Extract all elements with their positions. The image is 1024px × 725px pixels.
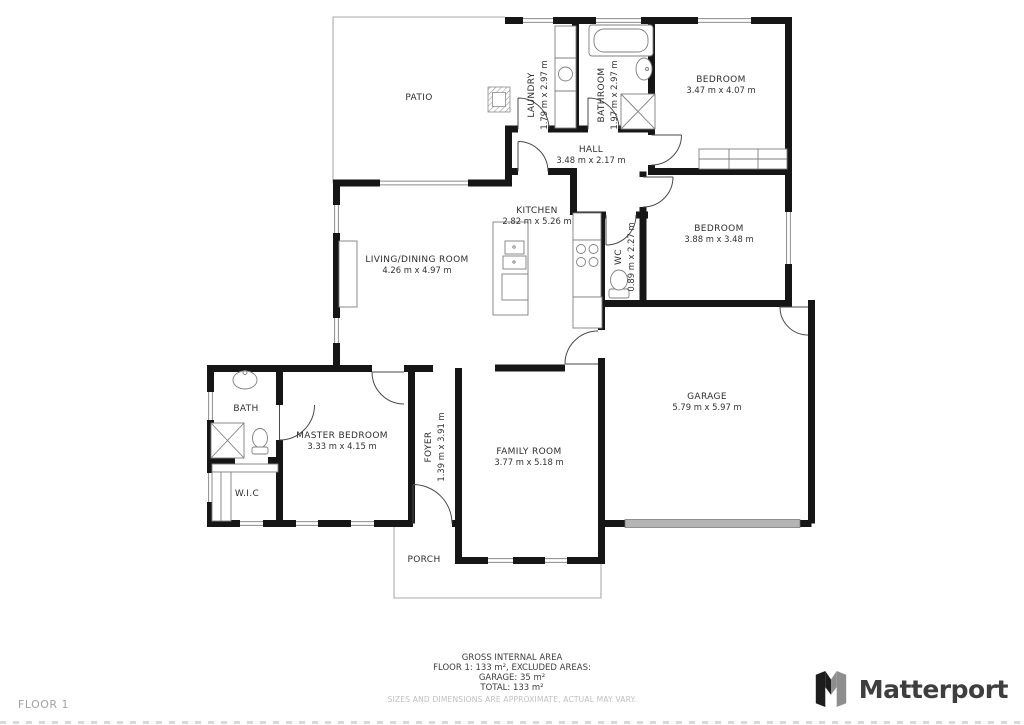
room-label-porch: PORCH [407,555,440,565]
matterport-logo: Matterport [812,670,1008,708]
room-label-garage: GARAGE [687,392,727,402]
garage-door [625,520,800,528]
room-label-patio: PATIO [405,93,432,103]
room-dims-bedroom-mid: 3.88 m x 3.48 m [684,234,753,244]
room-dims-bedroom-top: 3.47 m x 4.07 m [686,85,755,95]
room-label-laundry: LAUNDRY [527,72,537,117]
room-dims-foyer: 1.39 m x 3.91 m [436,412,446,481]
kitchen-counter [573,213,602,328]
room-label-bath: BATH [233,404,258,414]
room-label-kitchen: KITCHEN [516,206,557,216]
room-dims-family: 3.77 m x 5.18 m [494,457,563,467]
room-dims-laundry: 1.79 m x 2.97 m [539,60,549,129]
room-label-family: FAMILY ROOM [496,447,561,457]
floorplan-page: PATIO LAUNDRY 1.79 m x 2.97 m BATHROOM 1… [0,0,1024,725]
matterport-icon [812,670,850,708]
bath-fixtures [211,371,268,459]
room-label-bedroom-top: BEDROOM [696,75,745,85]
summary-title: GROSS INTERNAL AREA [0,653,1024,663]
room-label-wic: W.I.C [235,489,259,499]
kitchen-island [493,222,528,315]
room-dims-hall: 3.48 m x 2.17 m [556,155,625,165]
living-sideboard [339,241,357,307]
fireplace-hatch [488,87,510,112]
brand-name: Matterport [859,675,1008,704]
floor-label: FLOOR 1 [18,698,69,711]
room-dims-master: 3.33 m x 4.15 m [307,441,376,451]
room-dims-garage: 5.79 m x 5.97 m [672,402,741,412]
room-label-bedroom-mid: BEDROOM [694,224,743,234]
laundry-machines [555,26,576,128]
floor-plan-svg: PATIO LAUNDRY 1.79 m x 2.97 m BATHROOM 1… [0,0,1024,725]
room-label-wc: WC [614,249,624,265]
room-dims-living: 4.26 m x 4.97 m [382,265,451,275]
bathtub [589,25,653,56]
room-dims-kitchen: 2.82 m x 5.26 m [502,216,571,226]
room-dims-bathroom: 1.97 m x 2.97 m [609,60,619,129]
bathroom-sink [636,58,652,80]
bedroom-closet [699,149,787,169]
room-dims-wc: 0.89 m x 2.27 m [626,222,636,291]
room-label-bathroom: BATHROOM [597,68,607,123]
room-label-foyer: FOYER [424,432,434,463]
bathroom-shower [621,94,655,129]
room-label-living: LIVING/DINING ROOM [365,255,468,265]
bottom-dashed-edge [0,721,1024,724]
room-label-hall: HALL [579,145,603,155]
room-label-master: MASTER BEDROOM [296,431,388,441]
